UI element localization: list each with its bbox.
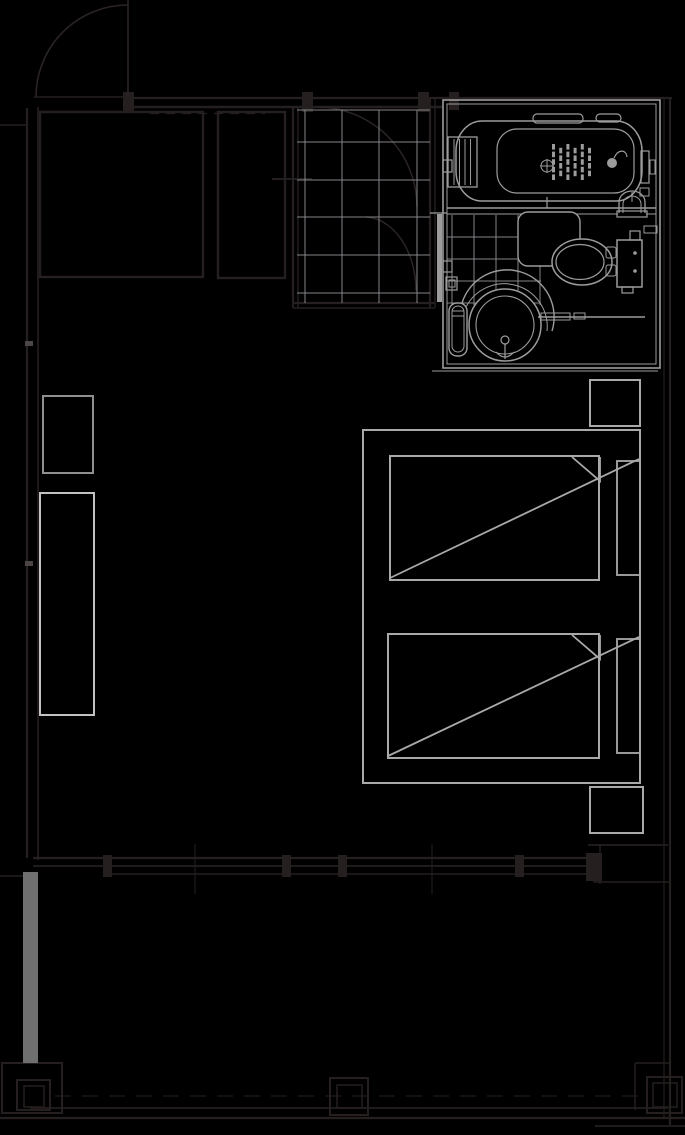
drain-mat-bar: [581, 152, 584, 158]
window-mullion: [103, 855, 112, 877]
luggage-bench: [40, 493, 94, 715]
column-bottom-left-inner: [24, 1086, 44, 1107]
drain-mat-bar: [581, 174, 584, 180]
drain-mat-bar: [559, 155, 562, 161]
bed-2: [388, 634, 640, 758]
closet-door-swing-arc-lower: [366, 217, 416, 291]
closet-cabinet-left: [40, 112, 203, 277]
sliding-door-track: [437, 214, 442, 302]
bed-2-cover-diagonal: [388, 637, 639, 756]
toilet-tank: [617, 240, 642, 287]
bed-1: [390, 456, 640, 580]
drain-mat-bar: [566, 174, 569, 180]
bed-2-pillow: [617, 639, 640, 753]
bed-1-cover-fold: [572, 457, 600, 481]
wall-joint-tick: [25, 561, 33, 566]
drain-mat-bar: [559, 171, 562, 177]
drain-mat-bar: [552, 144, 555, 150]
drain-mat-bar: [559, 148, 562, 154]
nightstand-bottom: [590, 787, 643, 833]
window-mullion: [282, 855, 291, 877]
drain-mat-bar: [588, 155, 591, 161]
column-bottom-left-outer: [2, 1063, 62, 1113]
drain-mat-bar: [559, 163, 562, 169]
wall-joint-tick: [25, 341, 33, 346]
wall-post: [449, 92, 459, 110]
drain-mat-bar: [552, 174, 555, 180]
tub-faucet: [607, 158, 617, 168]
toilet-bowl-outer: [552, 239, 612, 285]
drain-mat-bar: [566, 167, 569, 173]
drain-mat-bar: [581, 159, 584, 165]
drain-mat-bar: [566, 144, 569, 150]
floor-plan-drawing: [0, 0, 685, 1135]
toilet-paper-holder-base: [617, 211, 647, 217]
entry-door-swing-arc: [36, 5, 128, 97]
drain-mat-bar: [574, 163, 577, 169]
bed-2-mattress: [388, 634, 599, 758]
wall-post: [418, 92, 429, 112]
wall-post: [302, 92, 313, 112]
drain-mat-bar: [566, 152, 569, 158]
bed-1-cover-diagonal: [390, 459, 639, 578]
wall-joint-connector: [644, 226, 657, 233]
closet-cabinet-right: [218, 112, 285, 278]
toilet-tank-button: [633, 251, 637, 255]
drain-mat-bar: [581, 144, 584, 150]
bed-1-pillow: [617, 461, 640, 575]
nightstand-top: [590, 380, 640, 426]
drain-mat-bar: [581, 167, 584, 173]
column-bottom-right-inner: [653, 1083, 677, 1107]
window-mullion: [515, 855, 524, 877]
drain-mat-bar: [552, 152, 555, 158]
floor-plan-canvas: [0, 0, 685, 1135]
toilet-tank-button: [633, 269, 637, 273]
drain-mat-bar: [574, 148, 577, 154]
bed-2-cover-fold: [572, 635, 600, 659]
door-swings: [36, 0, 417, 291]
window-mullion: [338, 855, 347, 877]
filled-wall-segment: [23, 872, 38, 1063]
bathroom-unit: [430, 100, 660, 371]
drain-mat-bar: [588, 163, 591, 169]
towel-bar-bracket: [574, 313, 585, 319]
drain-mat-bar: [566, 159, 569, 165]
bed-1-mattress: [390, 456, 599, 580]
drain-mat-bar: [588, 171, 591, 177]
drain-mat-bar: [574, 171, 577, 177]
stool: [43, 396, 93, 473]
drain-mat-bar: [574, 155, 577, 161]
furniture: [23, 341, 643, 1063]
entry-floor-grid: [297, 110, 430, 303]
column-bottom-left-mid: [17, 1080, 50, 1110]
closet-door-swing-arc-upper: [317, 107, 417, 207]
drain-mat-bar: [588, 148, 591, 154]
toilet-supply-valve: [630, 231, 640, 240]
toilet-tank-foot: [622, 287, 633, 293]
tub-wall-fixture: [650, 160, 655, 174]
